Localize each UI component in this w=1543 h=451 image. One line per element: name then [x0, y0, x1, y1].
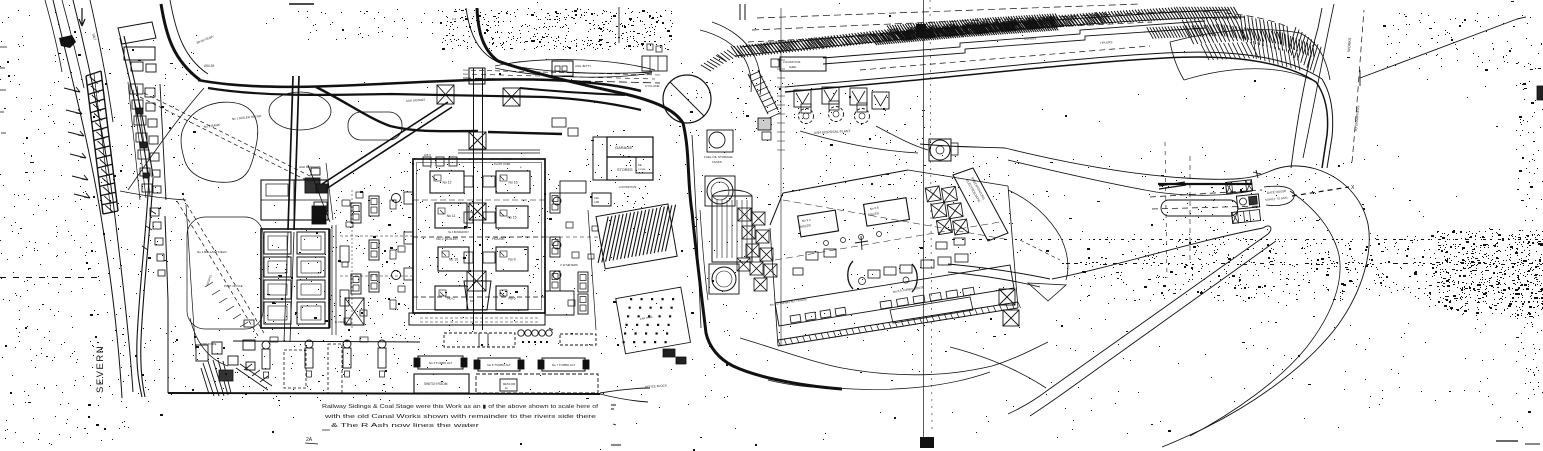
svg-text:No 2 BUNKER BAY: No 2 BUNKER BAY	[448, 231, 469, 234]
svg-text:TO SHARPNESS: TO SHARPNESS	[1354, 105, 1360, 132]
svg-text:LOCOMOTIVE: LOCOMOTIVE	[783, 60, 801, 64]
svg-text:ASH JETTY: ASH JETTY	[575, 64, 591, 68]
svg-text:CAR PARK: CAR PARK	[639, 315, 653, 321]
svg-text:PLANT OVER: PLANT OVER	[494, 162, 511, 166]
svg-text:ASH SIDINGS: ASH SIDINGS	[406, 98, 426, 103]
svg-text:SHED: SHED	[789, 65, 796, 69]
svg-text:STORE: STORE	[638, 169, 646, 171]
svg-text:SEVERN: SEVERN	[95, 345, 106, 393]
svg-text:LOCOMOTIVE: LOCOMOTIVE	[619, 185, 637, 189]
svg-text:BURIED PIPE: BURIED PIPE	[200, 342, 217, 346]
svg-text:POST OFFICE: POST OFFICE	[224, 284, 243, 288]
svg-text:2ft 6in RLWY: 2ft 6in RLWY	[196, 34, 215, 45]
svg-text:2A: 2A	[306, 437, 313, 443]
svg-text:COAL SIDINGS: COAL SIDINGS	[765, 39, 787, 45]
svg-text:No 5-6: No 5-6	[870, 206, 880, 211]
svg-text:HOUSE: HOUSE	[492, 237, 505, 241]
svg-text:No 1 BOILER HOUSE: No 1 BOILER HOUSE	[232, 114, 262, 121]
svg-text:BOILER: BOILER	[800, 223, 812, 229]
svg-text:B: B	[520, 167, 522, 169]
svg-text:No 12: No 12	[442, 181, 451, 185]
svg-text:No 15: No 15	[507, 216, 516, 220]
svg-text:FUEL OIL STORAGE: FUEL OIL STORAGE	[704, 155, 733, 159]
svg-text:No 4 TURBO ALT: No 4 TURBO ALT	[429, 361, 453, 365]
svg-text:BAY: BAY	[470, 300, 475, 303]
svg-text:A: A	[430, 166, 432, 169]
svg-text:No 2 BOILER: No 2 BOILER	[436, 237, 458, 241]
svg-text:Railway Sidings & Coal Stage w: Railway Sidings & Coal Stage were this W…	[322, 404, 599, 410]
svg-text:CYCLONE: CYCLONE	[645, 84, 660, 88]
svg-text:WORKS: WORKS	[1347, 37, 1352, 52]
svg-text:2 6: 2 6	[452, 17, 457, 21]
svg-text:GATE HOUSE: GATE HOUSE	[1267, 189, 1287, 195]
svg-text:No 3-4: No 3-4	[802, 218, 812, 223]
svg-text:GARAGE: GARAGE	[615, 145, 632, 150]
svg-text:A B C: A B C	[424, 153, 431, 157]
svg-text:No 2 BANK: No 2 BANK	[204, 123, 222, 129]
svg-text:X: X	[1351, 185, 1355, 191]
svg-text:C W METERS: C W METERS	[560, 263, 578, 267]
svg-text:&c: &c	[505, 387, 509, 390]
svg-text:SPORTS: SPORTS	[205, 274, 213, 286]
svg-text:COAL HANDLING: COAL HANDLING	[491, 157, 512, 161]
svg-text:SILT: SILT	[91, 33, 97, 42]
svg-text:No 7 TURBO ALT: No 7 TURBO ALT	[552, 363, 576, 367]
svg-text:SIDINGS: SIDINGS	[1024, 36, 1037, 41]
svg-text:MESS RM: MESS RM	[503, 382, 515, 386]
svg-text:No 11: No 11	[447, 214, 456, 218]
svg-text:& The R Ash now lines the wate: & The R Ash now lines the water	[331, 423, 480, 429]
svg-text:SUPPLY TO RIVR: SUPPLY TO RIVR	[1265, 196, 1288, 202]
svg-text:A94 2ft: A94 2ft	[204, 64, 214, 68]
svg-text:SWITCH ROOM: SWITCH ROOM	[424, 382, 448, 386]
svg-text:STORES: STORES	[617, 168, 633, 172]
svg-text:TANKS: TANKS	[712, 160, 722, 164]
svg-text:C&L: C&L	[594, 196, 600, 200]
svg-text:No 1 BALLAST FIELD: No 1 BALLAST FIELD	[197, 250, 227, 254]
svg-text:No 16: No 16	[508, 181, 517, 185]
svg-text:with the old Canal Works shown: with the old Canal Works shown with rema…	[325, 414, 596, 420]
svg-text:No 9: No 9	[508, 258, 515, 262]
svg-text:No 10: No 10	[449, 258, 458, 262]
svg-text:No 5-6 TURBO HOUSE: No 5-6 TURBO HOUSE	[893, 285, 925, 294]
svg-text:LAB: LAB	[594, 200, 599, 204]
svg-text:DE: DE	[638, 163, 642, 167]
svg-text:No 5 TURBO ALT: No 5 TURBO ALT	[487, 363, 511, 367]
svg-text:TIPLERS: TIPLERS	[1100, 40, 1113, 45]
